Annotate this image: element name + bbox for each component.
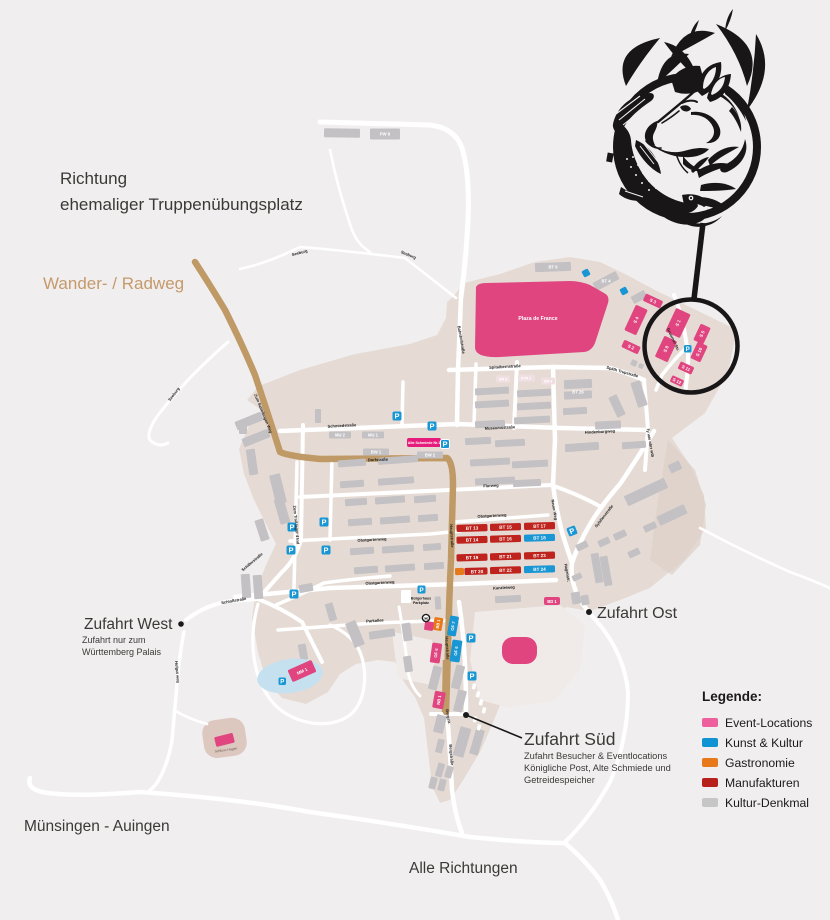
svg-text:Manufakturen: Manufakturen: [725, 776, 800, 790]
svg-text:Getreidespeicher: Getreidespeicher: [524, 775, 595, 785]
svg-text:BT 20: BT 20: [471, 569, 484, 574]
svg-text:P: P: [321, 518, 326, 527]
svg-text:Wander- / Radweg: Wander- / Radweg: [43, 274, 184, 293]
svg-text:P: P: [280, 680, 284, 686]
svg-text:BT 15: BT 15: [499, 525, 512, 530]
svg-text:Dorfstraße: Dorfstraße: [368, 457, 389, 463]
svg-text:P: P: [469, 672, 474, 681]
svg-text:PW 8: PW 8: [380, 132, 391, 137]
svg-text:BW 2: BW 2: [425, 453, 436, 458]
svg-text:Alle Richtungen: Alle Richtungen: [409, 860, 518, 877]
svg-text:Bürgerhaus: Bürgerhaus: [411, 597, 431, 601]
svg-text:Zufahrt nur zum: Zufahrt nur zum: [82, 635, 146, 645]
svg-text:Zufahrt Besucher & Eventlocati: Zufahrt Besucher & Eventlocations: [524, 751, 667, 761]
svg-text:BT 4: BT 4: [601, 279, 611, 284]
svg-text:BT 22: BT 22: [499, 568, 512, 573]
svg-text:P: P: [442, 440, 447, 449]
svg-text:BT 13: BT 13: [466, 526, 479, 531]
svg-text:BT 16: BT 16: [499, 536, 512, 541]
svg-text:Zufahrt West: Zufahrt West: [84, 616, 173, 633]
svg-text:Zufahrt Ost: Zufahrt Ost: [597, 605, 678, 622]
svg-text:Münsingen - Auingen: Münsingen - Auingen: [24, 818, 170, 835]
svg-text:P: P: [394, 412, 399, 421]
svg-text:P: P: [419, 587, 424, 594]
svg-text:Legende:: Legende:: [702, 689, 762, 704]
svg-text:SM 4: SM 4: [544, 380, 552, 384]
svg-text:SM 8: SM 8: [499, 378, 507, 382]
svg-text:Württemberg Palais: Württemberg Palais: [82, 647, 162, 657]
svg-text:P: P: [291, 590, 296, 599]
svg-text:BW 1: BW 1: [371, 450, 382, 455]
svg-text:P: P: [429, 422, 434, 431]
svg-text:STR 2: STR 2: [521, 377, 531, 381]
svg-text:BT 6: BT 6: [548, 265, 558, 270]
svg-text:BT 23: BT 23: [533, 553, 546, 558]
svg-text:BT 17: BT 17: [533, 524, 546, 529]
svg-text:P: P: [288, 546, 293, 555]
svg-text:BT 26: BT 26: [572, 390, 584, 395]
svg-text:BT 18: BT 18: [533, 535, 546, 540]
svg-text:BT 21: BT 21: [499, 554, 512, 559]
svg-text:P: P: [323, 546, 328, 555]
svg-text:Flurweg: Flurweg: [483, 483, 499, 489]
svg-text:Richtung: Richtung: [60, 169, 127, 188]
svg-text:Königliche Post, Alte Schmiede: Königliche Post, Alte Schmiede und: [524, 763, 671, 773]
svg-text:Plaza de France: Plaza de France: [518, 316, 557, 322]
svg-text:Kunst & Kultur: Kunst & Kultur: [725, 736, 803, 750]
svg-text:P: P: [289, 523, 294, 532]
svg-text:P: P: [686, 347, 690, 353]
svg-text:BT 24: BT 24: [533, 567, 546, 572]
svg-text:MU 2: MU 2: [335, 433, 346, 438]
svg-text:Alte Schmiede Nr.1: Alte Schmiede Nr.1: [408, 441, 441, 445]
svg-text:BT 19: BT 19: [466, 555, 479, 560]
svg-text:Gastronomie: Gastronomie: [725, 756, 795, 770]
svg-text:P: P: [468, 634, 473, 643]
svg-text:Parkplatz: Parkplatz: [413, 601, 429, 605]
svg-text:Kultur-Denkmal: Kultur-Denkmal: [725, 796, 809, 810]
svg-text:Event-Locations: Event-Locations: [725, 716, 812, 730]
svg-text:BD 1: BD 1: [547, 599, 557, 604]
svg-text:ehemaliger Truppenübungsplatz: ehemaliger Truppenübungsplatz: [60, 195, 303, 214]
svg-text:Zufahrt Süd: Zufahrt Süd: [524, 729, 615, 749]
svg-text:MU 1: MU 1: [368, 433, 379, 438]
svg-text:BT 14: BT 14: [466, 537, 479, 542]
